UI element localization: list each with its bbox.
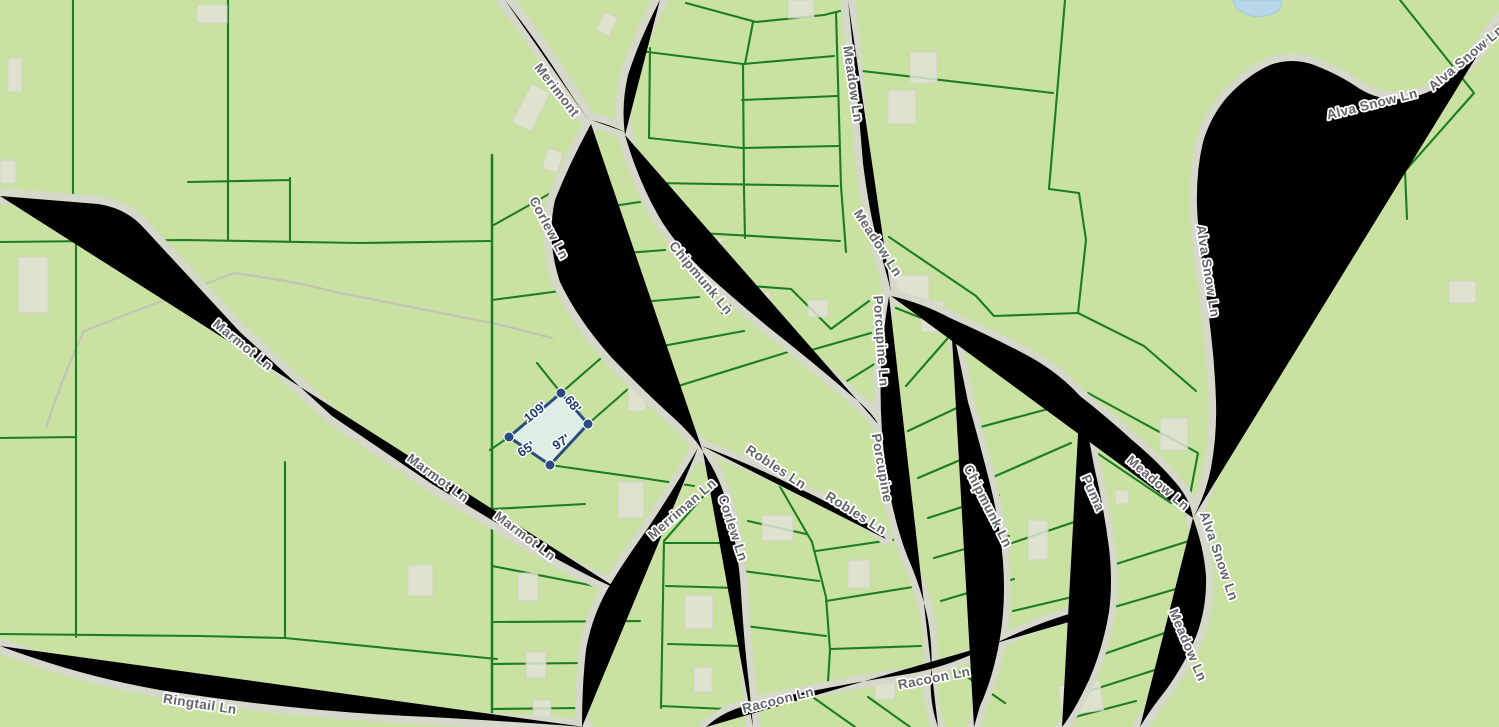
vertex-handle[interactable] xyxy=(504,432,514,442)
vertex-handle[interactable] xyxy=(583,419,593,429)
vertex-handle[interactable] xyxy=(545,460,555,470)
vertex-handle[interactable] xyxy=(556,388,566,398)
map-canvas[interactable]: Merimont Corlew Ln Chipmunk Ln Meadow Ln… xyxy=(0,0,1499,727)
